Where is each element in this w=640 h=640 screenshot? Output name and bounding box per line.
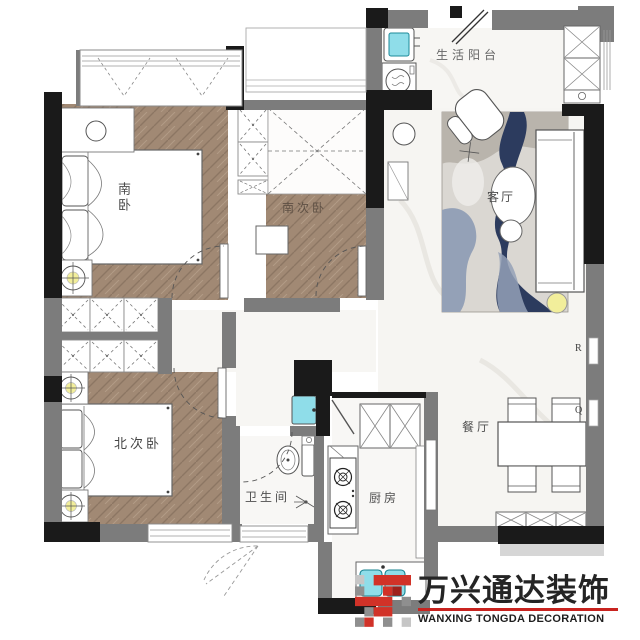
- logo-divider: [418, 608, 618, 611]
- wardrobe-divider: [56, 332, 158, 340]
- exterior-ledge: [246, 28, 366, 92]
- dining-chair: [508, 466, 536, 492]
- side-table: [500, 220, 522, 242]
- middle-bedroom-wardrobe: [238, 108, 268, 194]
- floorplan-page: 生活阳台 客厅 餐厅 厨房 卫生间 北次卧 南次卧 南卧 R Q 万兴通达装饰 …: [0, 0, 640, 640]
- basin-faucet: [312, 408, 316, 412]
- coffee-table: [491, 167, 535, 225]
- dining-chair: [552, 466, 580, 492]
- dining-chair: [552, 398, 580, 424]
- wardrobe-north: [56, 340, 158, 372]
- bay-window: [80, 50, 242, 106]
- company-watermark: 万兴通达装饰 WANXING TONGDA DECORATION: [355, 575, 618, 631]
- dining-table: [498, 422, 586, 466]
- floorplan-drawing: [0, 0, 640, 640]
- wall-inset-r: [589, 338, 598, 364]
- kitchen-upper-cabinets: [360, 404, 420, 448]
- balcony-cabinet: [564, 26, 600, 103]
- south-bedroom-nightstand: [56, 108, 134, 152]
- north-bedroom-bed: [56, 404, 172, 496]
- company-name-en: WANXING TONGDA DECORATION: [418, 613, 618, 625]
- kitchen-sliding-door: [426, 440, 436, 510]
- middle-bedroom-table: [256, 226, 288, 254]
- middle-bedroom-bed-planned: [268, 108, 366, 194]
- entry-door-swing: [204, 546, 258, 596]
- sofa: [536, 130, 584, 292]
- south-bedroom-bed: [58, 150, 202, 264]
- wall-inset-q: [589, 400, 598, 426]
- stove-icon: [328, 446, 358, 534]
- company-name-zh: 万兴通达装饰: [418, 575, 618, 606]
- dining-chair: [508, 398, 536, 424]
- company-logo-icon: [355, 575, 411, 631]
- floor-lamp: [547, 293, 567, 313]
- bathroom-window: [240, 526, 308, 542]
- wardrobe-south: [56, 298, 158, 332]
- north-bedroom-window: [148, 524, 232, 542]
